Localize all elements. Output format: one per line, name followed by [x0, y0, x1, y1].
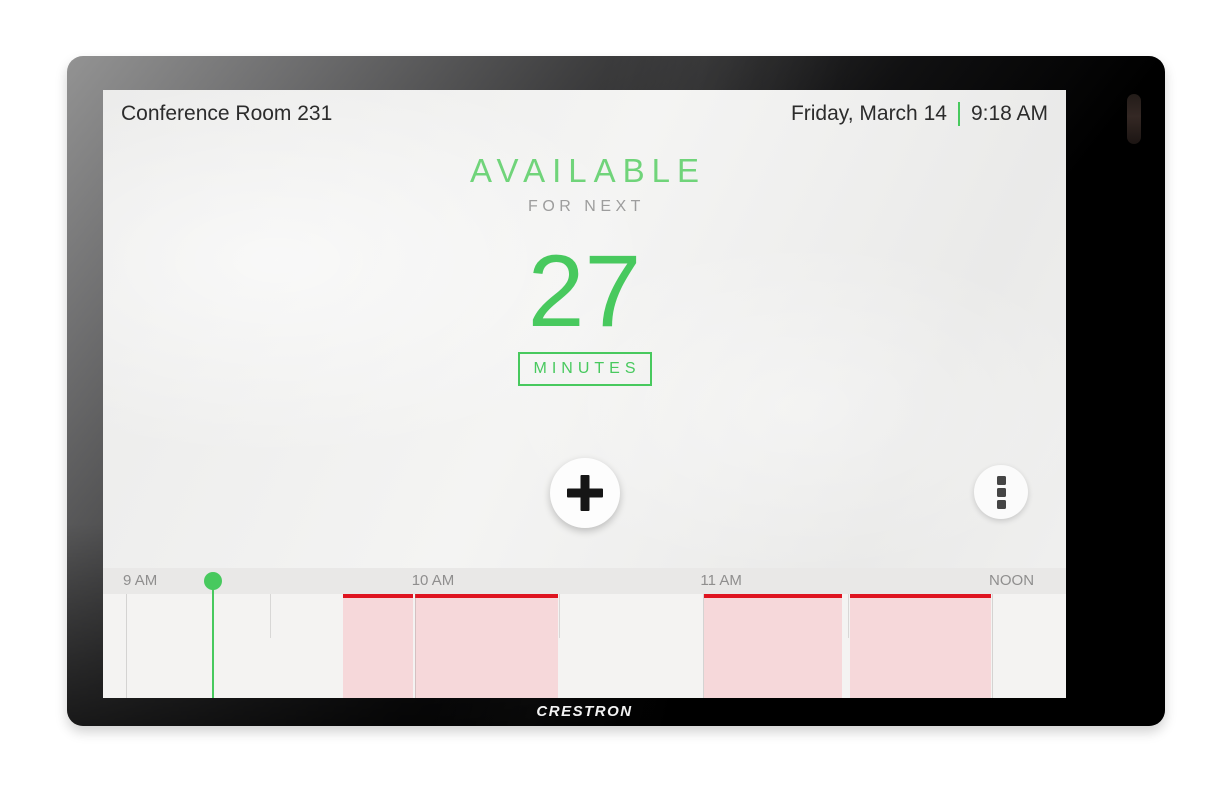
hour-gridline [703, 594, 704, 698]
camera-sensor [1127, 94, 1141, 144]
time-label: 9:18 AM [971, 102, 1048, 126]
minutes-unit-badge: MINUTES [518, 352, 652, 386]
hour-gridline [126, 594, 127, 698]
vertical-ellipsis-icon [974, 465, 1028, 519]
current-time-line [212, 581, 214, 698]
datetime: Friday, March 14 9:18 AM [791, 102, 1048, 126]
busy-meeting-block [415, 594, 558, 698]
busy-meeting-block [704, 594, 842, 698]
half-hour-tick [848, 594, 849, 638]
availability-status: AVAILABLE [103, 152, 1066, 190]
touch-panel-device: Conference Room 231 Friday, March 14 9:1… [67, 56, 1165, 726]
bottom-bezel: CRESTRON [103, 703, 1066, 721]
datetime-separator [958, 102, 960, 126]
hour-gridline [415, 594, 416, 698]
half-hour-tick [559, 594, 560, 638]
busy-meeting-block [850, 594, 991, 698]
hour-gridline [992, 594, 993, 698]
minutes-badge-row: MINUTES [103, 352, 1066, 386]
minutes-remaining: 27 [103, 240, 1066, 342]
room-name: Conference Room 231 [121, 102, 332, 126]
page-background: Conference Room 231 Friday, March 14 9:1… [0, 0, 1214, 791]
timeline-chart [103, 594, 1066, 698]
schedule-timeline: 9 AM10 AM11 AMNOON [103, 568, 1066, 698]
touch-screen: Conference Room 231 Friday, March 14 9:1… [103, 90, 1066, 698]
timeline-hour-label-strip: 9 AM10 AM11 AMNOON [103, 568, 1066, 594]
for-next-label: FOR NEXT [103, 198, 1066, 216]
date-label: Friday, March 14 [791, 102, 947, 126]
more-options-button[interactable] [974, 465, 1028, 519]
hour-label: NOON [989, 572, 1034, 589]
hour-label: 9 AM [123, 572, 157, 589]
hour-label: 11 AM [700, 572, 741, 589]
hour-label: 10 AM [412, 572, 455, 589]
plus-icon [550, 458, 620, 528]
busy-meeting-block [343, 594, 413, 698]
half-hour-tick [270, 594, 271, 638]
crestron-logo: CRESTRON [536, 703, 632, 720]
add-meeting-button[interactable] [550, 458, 620, 528]
